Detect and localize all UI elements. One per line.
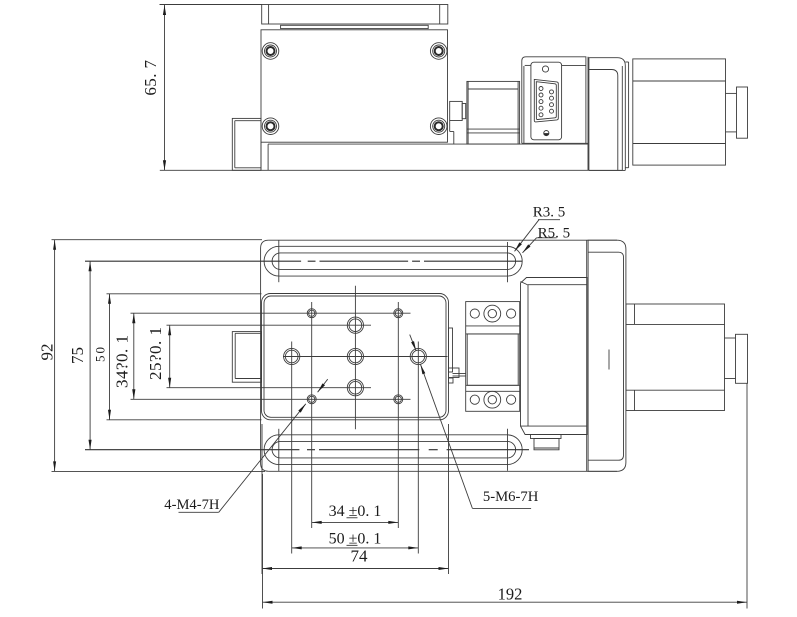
svg-text:92: 92 bbox=[38, 344, 57, 361]
svg-text:192: 192 bbox=[498, 585, 523, 604]
svg-text:74: 74 bbox=[351, 547, 369, 566]
svg-text:75: 75 bbox=[68, 347, 87, 364]
svg-text:65. 7: 65. 7 bbox=[141, 60, 160, 96]
svg-text:34?0. 1: 34?0. 1 bbox=[112, 334, 131, 388]
svg-text:5-M6-7H: 5-M6-7H bbox=[483, 489, 539, 505]
svg-text:34 ±0. 1: 34 ±0. 1 bbox=[329, 503, 382, 520]
svg-text:50 ±0. 1: 50 ±0. 1 bbox=[329, 531, 382, 548]
svg-text:R5. 5: R5. 5 bbox=[538, 225, 571, 241]
svg-text:4-M4-7H: 4-M4-7H bbox=[164, 497, 220, 513]
svg-text:50: 50 bbox=[93, 345, 108, 362]
svg-text:25?0. 1: 25?0. 1 bbox=[146, 326, 165, 380]
svg-text:R3. 5: R3. 5 bbox=[533, 205, 566, 221]
